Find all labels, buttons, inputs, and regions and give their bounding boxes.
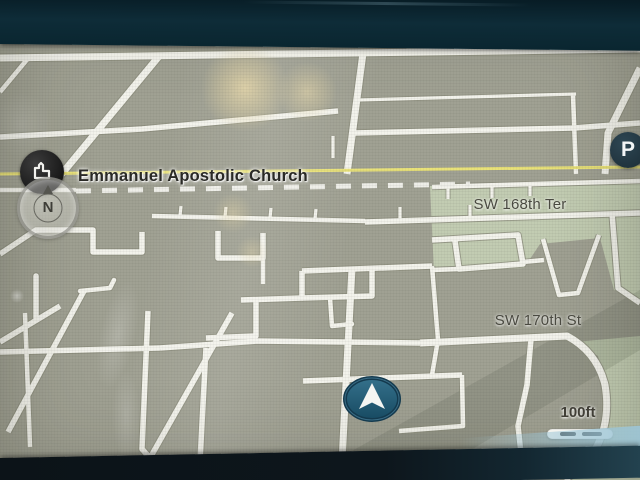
compass-north-label: N (43, 199, 54, 216)
street-label-168th: SW 168th Ter (455, 196, 585, 213)
map-scale-label: 100ft (545, 404, 611, 421)
compass-button[interactable]: N (17, 177, 79, 239)
parking-poi-button[interactable]: P (610, 132, 640, 168)
photo-flares (0, 44, 337, 460)
parking-label: P (621, 138, 635, 162)
street-label-170th: SW 170th St (478, 312, 598, 329)
vehicle-position-marker (341, 374, 403, 424)
nav-screen: Emmanuel Apostolic Church N P SW 168th T… (0, 0, 640, 480)
map-canvas[interactable] (0, 0, 640, 480)
poi-label[interactable]: Emmanuel Apostolic Church (78, 167, 308, 186)
top-bezel (0, 0, 640, 51)
